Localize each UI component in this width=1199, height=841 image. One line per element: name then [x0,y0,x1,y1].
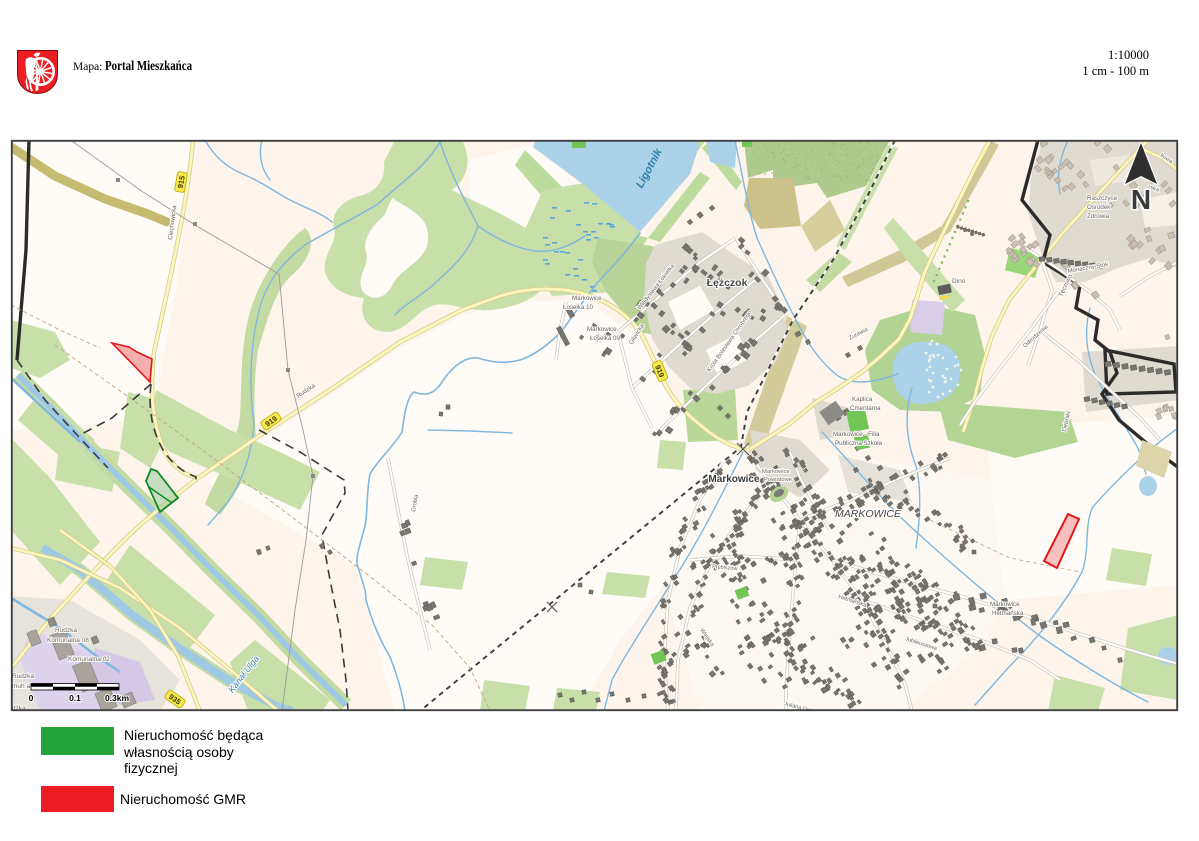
svg-text:0.1: 0.1 [69,693,81,703]
svg-text:Komunalna 02: Komunalna 02 [68,656,110,663]
svg-text:Komunalna 08: Komunalna 08 [47,637,89,644]
svg-text:Rudzka: Rudzka [12,673,34,680]
svg-text:Dino: Dino [952,278,966,285]
svg-text:N: N [1131,184,1151,215]
svg-text:Markowice - Filia: Markowice - Filia [833,431,880,438]
svg-text:MARKOWICE: MARKOWICE [835,508,902,520]
svg-text:Zdrowia: Zdrowia [1087,213,1110,220]
svg-text:Łośelka 09: Łośelka 09 [590,335,620,342]
svg-text:0: 0 [29,693,34,703]
svg-text:Rudzka: Rudzka [55,627,77,634]
svg-text:0.3km: 0.3km [105,693,130,703]
svg-text:Cmentarna: Cmentarna [850,405,881,412]
svg-text:Markowice: Markowice [708,474,760,485]
svg-text:Łężczok: Łężczok [707,277,748,289]
svg-text:Publiczna Szkoła: Publiczna Szkoła [835,440,883,447]
svg-text:Powiatowe: Powiatowe [764,477,792,483]
svg-text:Hetmańska: Hetmańska [992,610,1024,617]
svg-text:Kaplica: Kaplica [852,396,873,403]
svg-text:Markowice: Markowice [572,295,602,302]
svg-text:Łośelka 10: Łośelka 10 [563,304,593,311]
svg-text:Markowice: Markowice [587,326,617,333]
svg-text:Raszczyce: Raszczyce [1087,195,1117,202]
svg-text:Ośrodek: Ośrodek [1087,204,1111,211]
svg-text:Markowice: Markowice [990,601,1020,608]
svg-text:Markowice: Markowice [762,469,790,475]
